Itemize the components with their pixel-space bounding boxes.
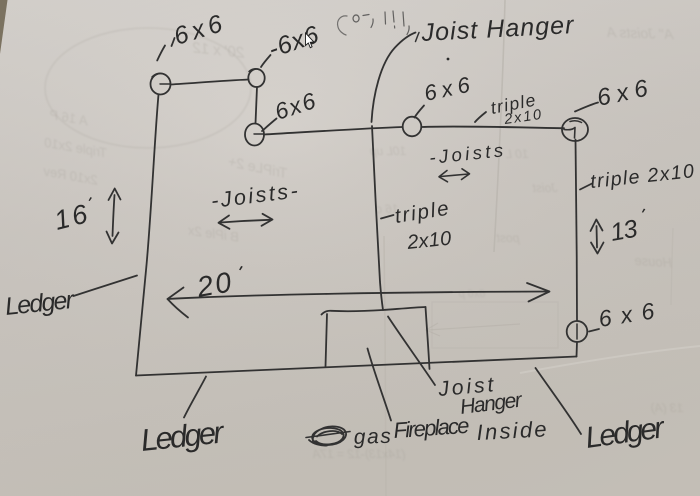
svg-text:10L up: 10L up — [369, 144, 406, 158]
svg-text:2x10: 2x10 — [405, 227, 452, 254]
svg-text:A" Joists A: A" Joists A — [607, 24, 675, 42]
svg-text:Fireplace: Fireplace — [393, 413, 471, 443]
svg-text:Joist: Joist — [532, 181, 558, 195]
svg-text:gas: gas — [353, 425, 391, 449]
svg-text:13: 13 — [608, 215, 640, 247]
svg-text:House: House — [634, 253, 673, 271]
svg-text:10 L: 10 L — [505, 147, 528, 161]
svg-text:6x6 p: 6x6 p — [459, 288, 486, 300]
svg-text:(14x13)-12 = 17A: (14x13)-12 = 17A — [312, 447, 405, 461]
svg-text:post: post — [496, 231, 520, 245]
